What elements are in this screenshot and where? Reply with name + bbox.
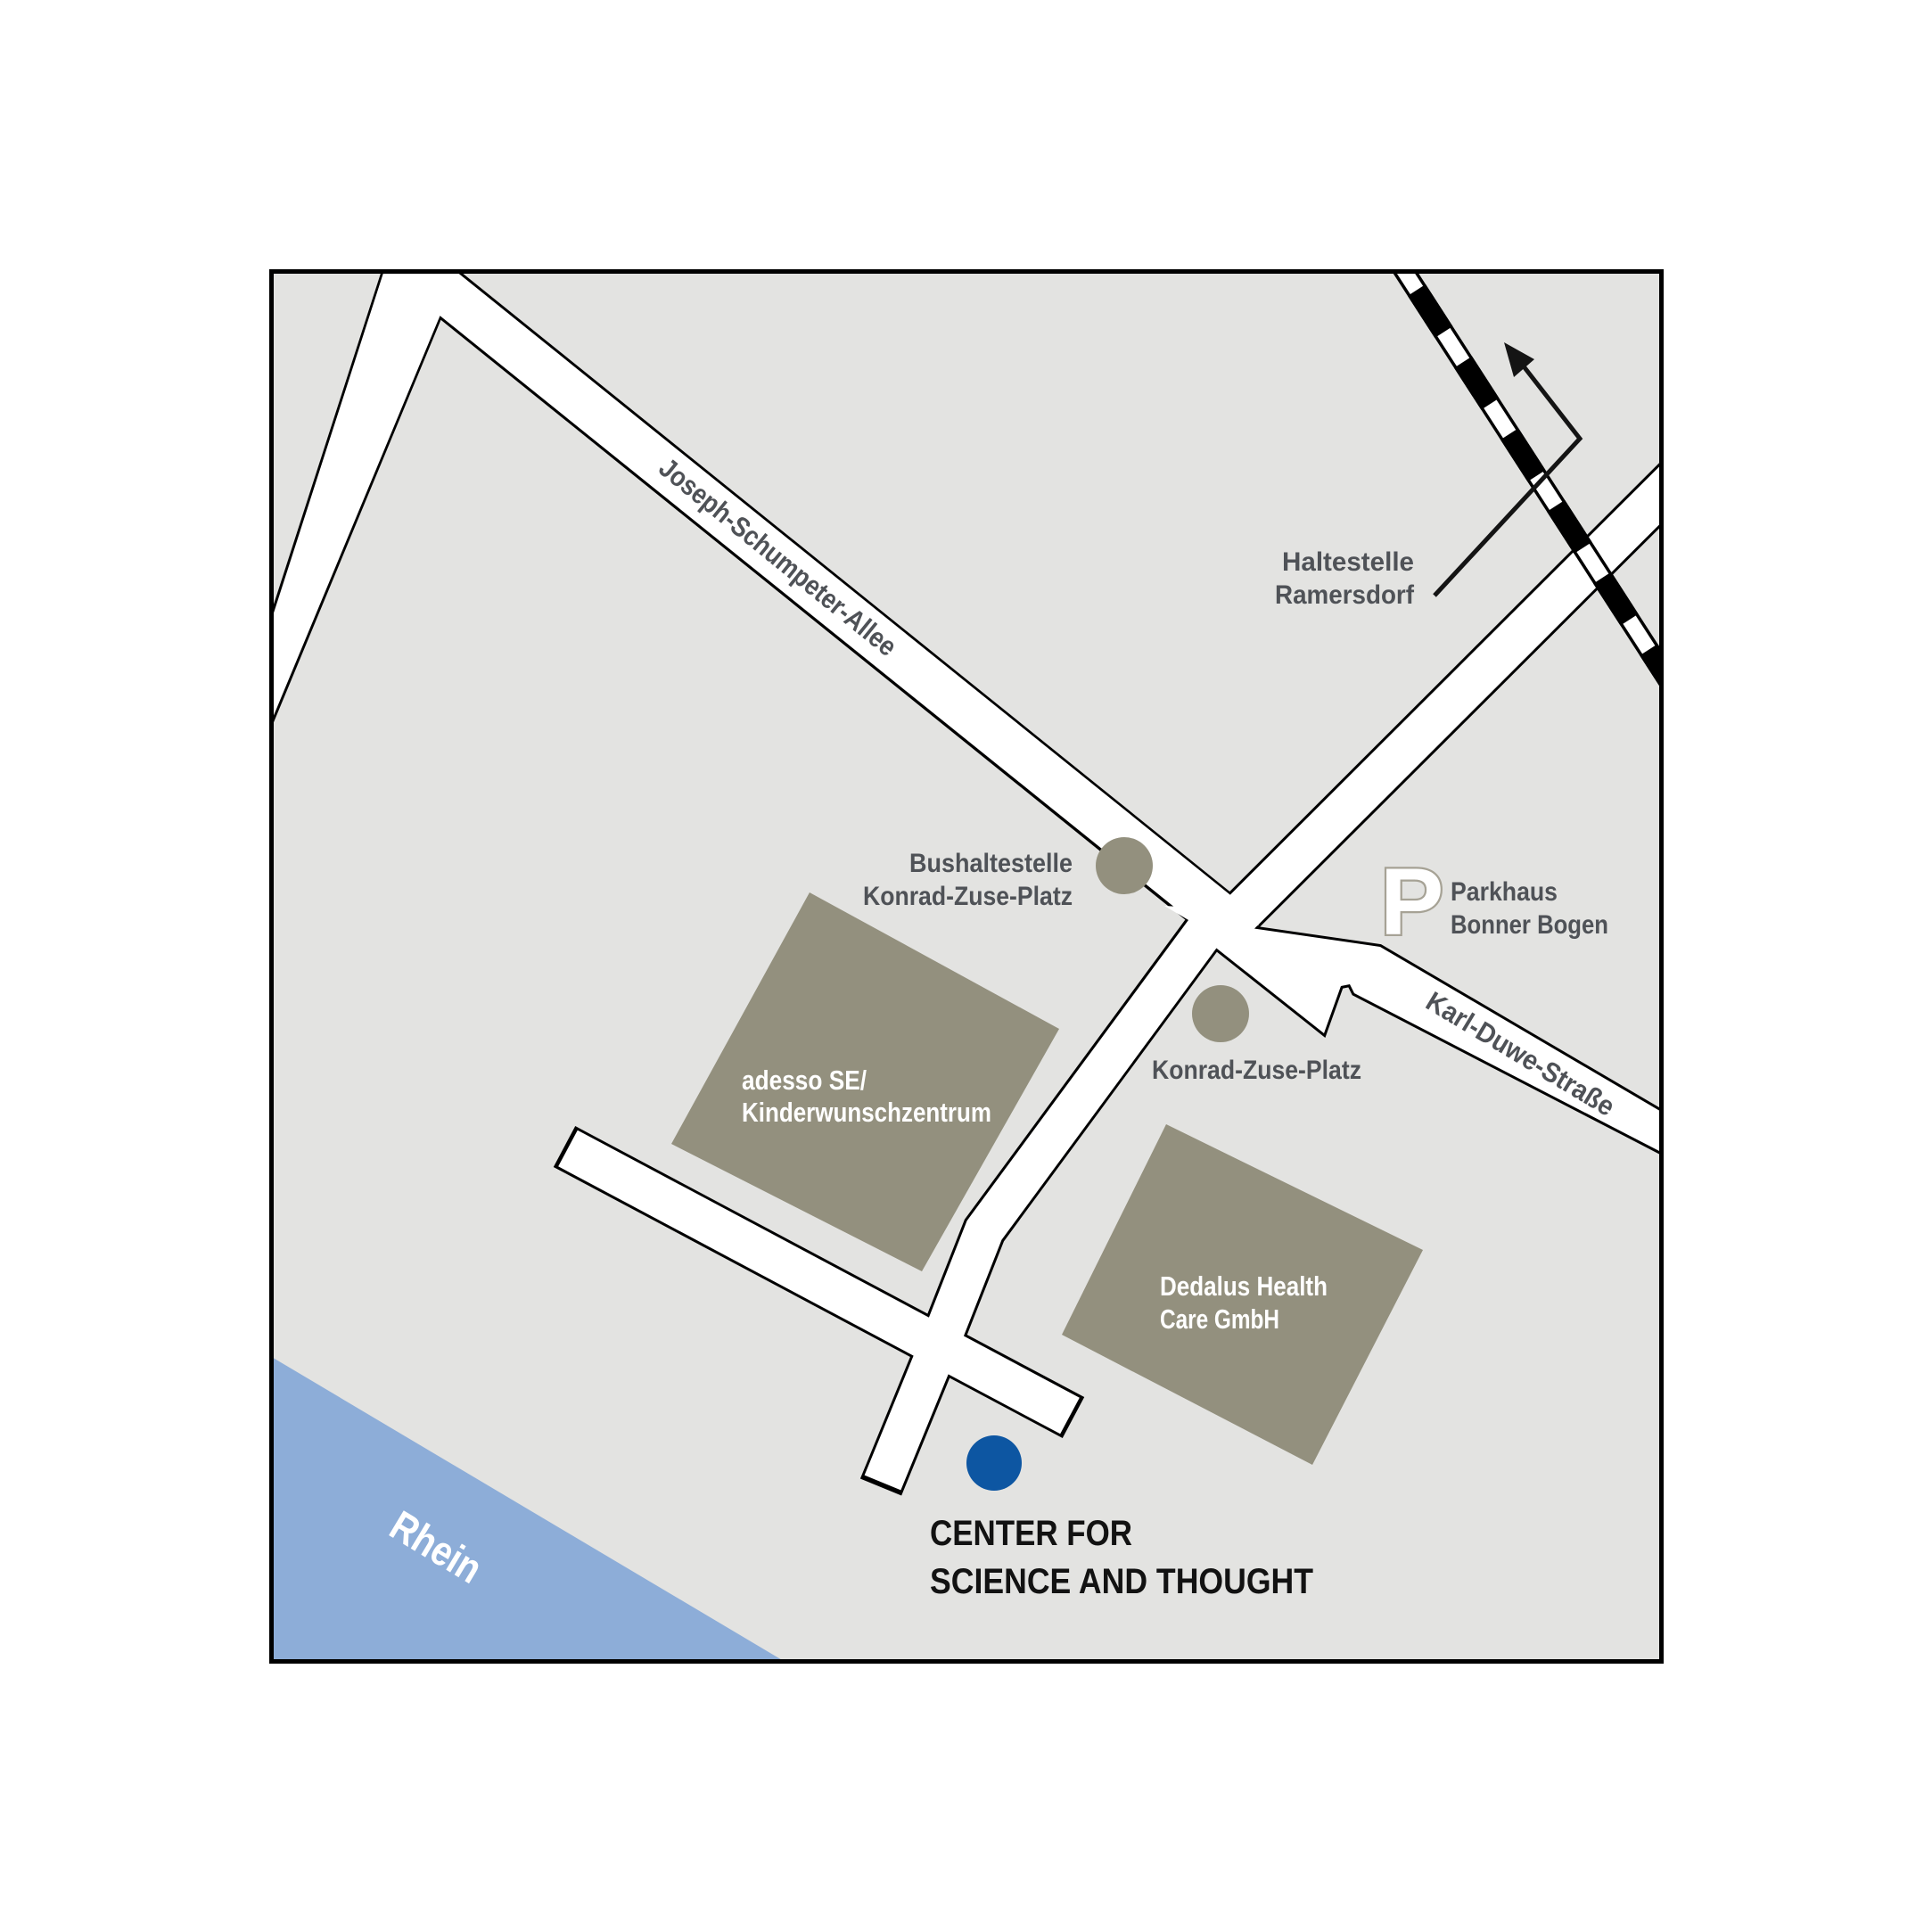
svg-text:Care GmbH: Care GmbH bbox=[1160, 1303, 1279, 1335]
svg-text:P: P bbox=[1380, 848, 1443, 955]
svg-text:Haltestelle: Haltestelle bbox=[1282, 547, 1414, 577]
svg-text:Konrad-Zuse-Platz: Konrad-Zuse-Platz bbox=[863, 882, 1073, 911]
svg-text:Konrad-Zuse-Platz: Konrad-Zuse-Platz bbox=[1152, 1056, 1361, 1085]
svg-text:Bushaltestelle: Bushaltestelle bbox=[909, 849, 1073, 878]
svg-text:Ramersdorf: Ramersdorf bbox=[1275, 580, 1415, 610]
svg-text:Parkhaus: Parkhaus bbox=[1451, 877, 1558, 907]
svg-text:Dedalus Health: Dedalus Health bbox=[1160, 1270, 1328, 1302]
svg-text:Kinderwunschzentrum: Kinderwunschzentrum bbox=[742, 1097, 991, 1128]
svg-text:Bonner Bogen: Bonner Bogen bbox=[1451, 910, 1608, 940]
svg-text:adesso SE/: adesso SE/ bbox=[742, 1065, 867, 1096]
svg-text:SCIENCE AND THOUGHT: SCIENCE AND THOUGHT bbox=[930, 1562, 1313, 1601]
svg-text:CENTER FOR: CENTER FOR bbox=[930, 1514, 1132, 1553]
